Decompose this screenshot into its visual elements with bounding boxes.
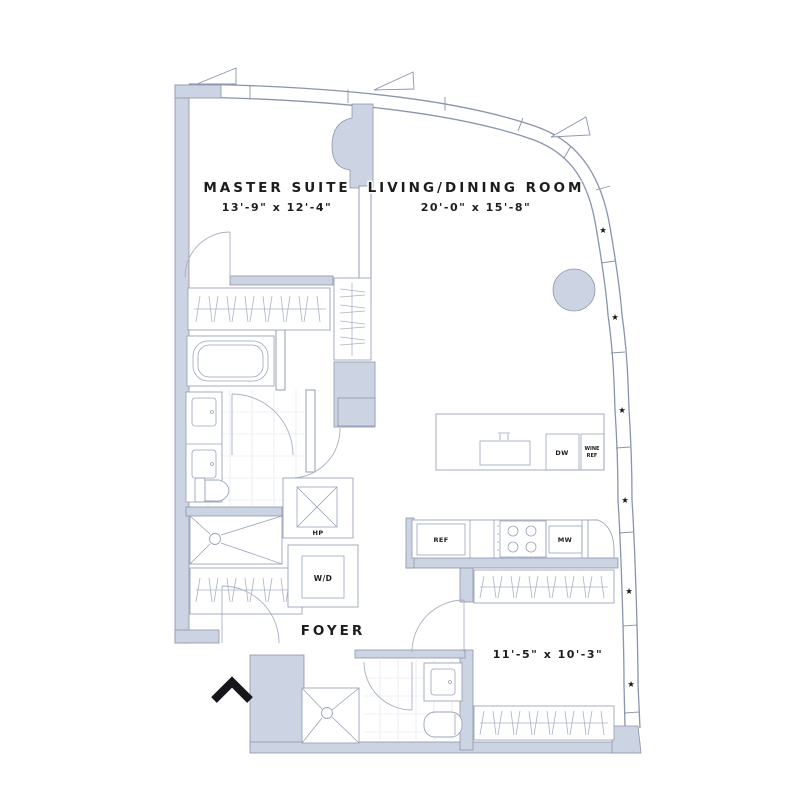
north-arrow-icon — [214, 682, 250, 700]
wine-ref-label-line1: WINE — [585, 446, 601, 452]
master-suite-dimensions: 13'-9" x 12'-4" — [222, 201, 333, 214]
shower-drain — [210, 534, 221, 545]
bedroom-closet-top — [474, 570, 614, 603]
bath-right-wall-lower — [306, 390, 315, 472]
hall-door-arc — [293, 428, 340, 478]
window-marker-star-icon: ★ — [625, 587, 633, 597]
round-column — [553, 269, 595, 311]
window-marker-star-icon: ★ — [611, 313, 619, 323]
bath2-toilet — [424, 712, 462, 737]
living-dining-label: LIVING/DINING ROOM — [368, 180, 585, 196]
shower-2-drain — [322, 708, 333, 719]
refrigerator-label: REF — [433, 536, 448, 544]
second-bathroom-top-wall — [355, 650, 465, 658]
wine-ref-label-line2: REF — [587, 453, 598, 459]
window-marker-star-icon: ★ — [627, 680, 635, 690]
window-marker-star-icon: ★ — [599, 226, 607, 236]
curtain-wall: ★ ★ ★ ★ ★ ★ — [189, 68, 640, 728]
floor-plan-page: ★ ★ ★ ★ ★ ★ MASTER SUITE 13'-9" x 12'-4" — [0, 0, 800, 792]
toilet-tank — [195, 478, 205, 502]
foyer-bottom-wall-stub — [175, 630, 219, 643]
operable-window-icon — [197, 68, 236, 84]
bathroom-door-arc — [232, 394, 293, 455]
utility-closets: HP W/D — [283, 428, 358, 607]
toilet-bowl — [205, 480, 229, 501]
top-left-corner-wall — [175, 85, 221, 98]
bath2-door-arc — [364, 662, 412, 710]
master-suite-label: MASTER SUITE — [203, 180, 350, 196]
bottom-right-corner-wall — [612, 726, 641, 753]
kitchen: DW WINE REF REF MW — [412, 414, 614, 558]
master-wall-below — [230, 276, 333, 285]
bedroom-door-arc — [412, 600, 464, 652]
window-marker-star-icon: ★ — [618, 406, 626, 416]
floor-plan-drawing: ★ ★ ★ ★ ★ ★ MASTER SUITE 13'-9" x 12'-4" — [0, 0, 800, 792]
shower-top-wall — [186, 507, 282, 516]
microwave-label: MW — [558, 536, 572, 544]
entry-wall-column — [250, 655, 304, 747]
hall-door-wall-stub — [338, 398, 375, 426]
master-suite-door-arc — [185, 232, 230, 277]
kitchen-counter-rounded-end — [588, 520, 614, 558]
operable-window-icon — [374, 72, 414, 90]
living-dining-dimensions: 20'-0" x 15'-8" — [421, 201, 532, 214]
living-dining-room: LIVING/DINING ROOM 20'-0" x 15'-8" — [368, 180, 585, 214]
shower — [190, 516, 282, 564]
foyer-label: FOYER — [301, 623, 366, 639]
bottom-wall-band — [250, 742, 640, 753]
second-bedroom-dimensions: 11'-5" x 10'-3" — [493, 648, 604, 661]
divider-column — [332, 104, 373, 188]
dishwasher-label: DW — [555, 449, 568, 457]
master-suite: MASTER SUITE 13'-9" x 12'-4" — [185, 180, 351, 277]
second-bathroom — [302, 660, 462, 743]
washer-dryer-label: W/D — [314, 574, 332, 583]
kitchen-bottom-wall — [406, 558, 618, 568]
window-marker-star-icon: ★ — [621, 496, 629, 506]
operable-window-icon — [551, 117, 590, 137]
heat-pump-label: HP — [312, 529, 323, 537]
bath-right-wall-upper — [276, 330, 285, 390]
